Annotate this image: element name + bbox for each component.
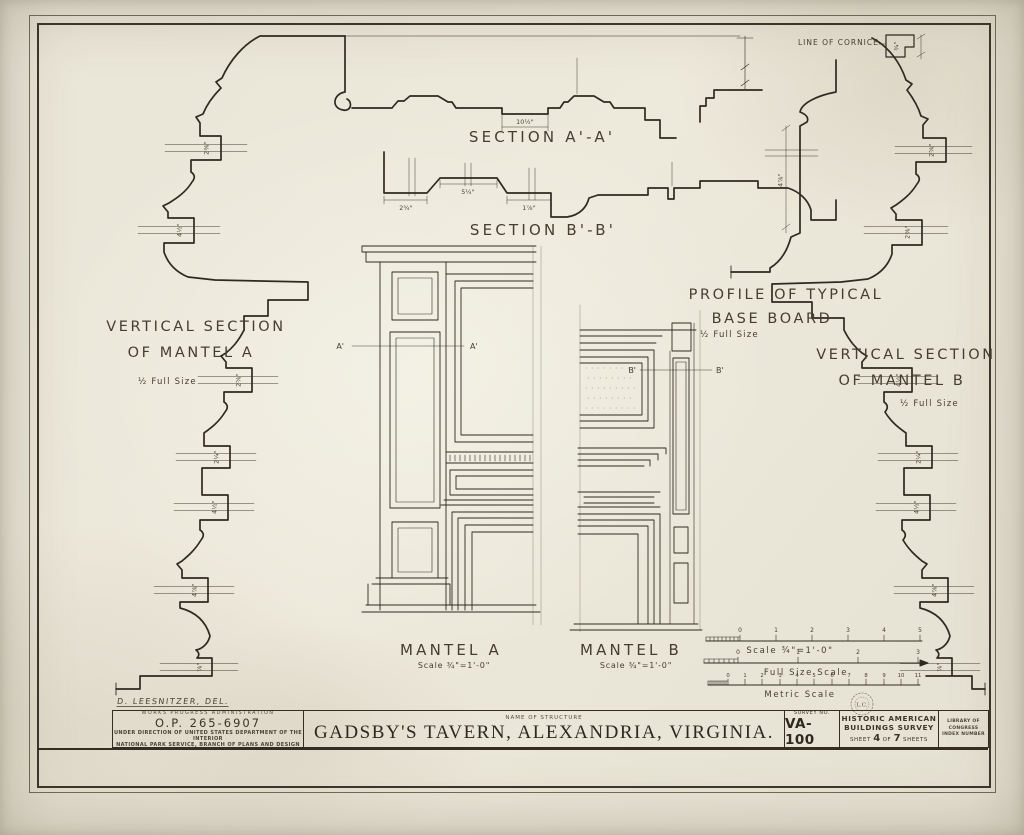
line-of-cornice-label: LINE OF CORNICE: [798, 38, 879, 47]
stamp-initials: L.C.: [856, 703, 867, 709]
survey-number: VA-100: [785, 716, 839, 747]
sheet-total: 7: [894, 733, 901, 744]
mantel-a-mark-left: A': [336, 342, 344, 351]
scale34-tick-0: 0: [738, 627, 742, 634]
cornice-dim: ¾": [894, 41, 901, 50]
vsa-dim-4: 4½": [211, 500, 219, 514]
section-aa-label: SECTION A'-A': [469, 128, 615, 146]
vsa-dim-6: ⅞": [197, 662, 204, 671]
metric-tick-3: 3: [778, 673, 781, 679]
cornice-reference-line: [260, 36, 886, 90]
vertical-section-b-line1: VERTICAL SECTION: [816, 347, 995, 363]
mantel-a-scale: Scale ¾"=1'-0": [418, 661, 490, 670]
of-word: OF: [883, 737, 892, 743]
mantel-a-mark-right: A': [470, 342, 478, 351]
vertical-section-b-line2: OF MANTEL B: [839, 373, 966, 389]
scale34-label: Scale ¾"=1'-0": [746, 646, 833, 656]
fullsize-tick-2: 2: [856, 649, 860, 656]
section-bb-label: SECTION B'-B': [470, 221, 616, 239]
mantel-b-mark-right: B': [716, 366, 724, 375]
metric-tick-5: 5: [812, 673, 815, 679]
scale34-tick-5: 5: [918, 627, 922, 634]
graphic-scales: 0 1 2 3 4 5 Scale ¾"=1'-0" 0 1 2 3 Full …: [704, 627, 928, 715]
baseboard-label-line2: BASE BOARD: [712, 311, 833, 327]
mantel-b-label: MANTEL B: [580, 641, 682, 659]
fullsize-tick-0: 0: [736, 649, 740, 656]
vsb-dim-0: 2⅝": [929, 143, 936, 157]
section-aa-dim: 10½": [516, 118, 534, 126]
fullsize-tick-3: 3: [916, 649, 920, 656]
vertical-section-b-scale: ½ Full Size: [900, 399, 959, 409]
scale34-tick-1: 1: [774, 627, 778, 634]
mantel-a-elevation: A' A': [336, 246, 541, 625]
vertical-section-a-scale: ½ Full Size: [138, 377, 197, 387]
metric-tick-2: 2: [760, 673, 763, 679]
metric-label: Metric Scale: [764, 690, 835, 700]
metric-tick-11: 11: [915, 673, 922, 679]
direction-line-1: UNDER DIRECTION OF UNITED STATES DEPARTM…: [113, 730, 303, 743]
vsb-dim-4: 4½": [913, 500, 921, 514]
vertical-section-a-line2: OF MANTEL A: [128, 345, 255, 361]
loc-line-1: LIBRARY OF CONGRESS: [947, 719, 980, 731]
metric-tick-0: 0: [726, 673, 730, 679]
mantel-a-vertical-section-profile: 2⅜" 4½" 2⅝" 2¼" 4½" 4⅞" ⅞": [116, 36, 345, 695]
vsa-dim-3: 2¼": [214, 450, 221, 464]
metric-tick-8: 8: [864, 673, 868, 679]
vsb-dim-5: 4⅞": [932, 583, 939, 597]
structure-name: GADSBY'S TAVERN, ALEXANDRIA, VIRGINIA.: [314, 722, 774, 744]
title-block-name-cell: NAME OF STRUCTURE GADSBY'S TAVERN, ALEXA…: [303, 711, 784, 747]
vsb-dim-6: ⅞": [937, 662, 944, 671]
baseboard-scale: ½ Full Size: [700, 330, 759, 340]
vertical-section-a-line1: VERTICAL SECTION: [106, 319, 285, 335]
sheet-word: SHEET: [850, 737, 871, 743]
habs-line-1: HISTORIC AMERICAN: [841, 714, 936, 723]
loc-line-2: INDEX NUMBER: [942, 732, 985, 737]
name-of-structure-label: NAME OF STRUCTURE: [505, 715, 582, 721]
title-block-agency-cell: WORKS PROGRESS ADMINISTRATION O.P. 265-6…: [113, 711, 303, 747]
title-block-loc-cell: LIBRARY OF CONGRESS INDEX NUMBER: [938, 711, 988, 747]
section-bb-dim-2: 1⅞": [522, 205, 536, 212]
habs-line-2: BUILDINGS SURVEY: [844, 723, 934, 732]
baseboard-dim: 4⅞": [778, 173, 785, 187]
delineator-signature: D. LEESNITZER, DEL.: [116, 697, 229, 707]
vsb-dim-3: 2¼": [916, 450, 923, 464]
metric-tick-1: 1: [743, 673, 746, 679]
mantel-b-scale: Scale ¾"=1'-0": [600, 661, 672, 670]
baseboard-label-line1: PROFILE OF TYPICAL: [689, 287, 884, 303]
scale34-tick-4: 4: [882, 627, 886, 634]
op-number: O.P. 265-6907: [155, 716, 261, 730]
baseboard-profile: 4⅞": [731, 60, 836, 278]
section-aa-profile: 10½": [335, 36, 762, 138]
vsa-dim-1: 4½": [176, 223, 184, 237]
sheet-number: 4: [873, 733, 880, 744]
title-block-habs-cell: HISTORIC AMERICAN BUILDINGS SURVEY SHEET…: [839, 711, 938, 747]
mantel-b-vertical-section-profile: 2⅝" 2⅜" 4½" 2¼" 4½" 4⅞" ⅞": [772, 38, 985, 695]
fullsize-label: Full Size Scale: [764, 668, 848, 678]
section-bb-dim-1: 5¼": [461, 189, 475, 196]
sheets-word: SHEETS: [903, 737, 928, 743]
sheet-count-line: SHEET 4 OF 7 SHEETS: [850, 733, 928, 744]
vsb-dim-1: 2⅜": [905, 225, 912, 239]
mantel-b-elevation: B' B': [570, 305, 724, 632]
mantel-a-label: MANTEL A: [400, 641, 502, 659]
scale34-tick-2: 2: [810, 627, 814, 634]
title-block-survey-cell: SURVEY NO. VA-100: [784, 711, 839, 747]
scale34-tick-3: 3: [846, 627, 850, 634]
direction-line-2: NATIONAL PARK SERVICE, BRANCH OF PLANS A…: [116, 742, 300, 747]
vsa-dim-2: 2⅝": [236, 373, 243, 387]
fullsize-tick-1: 1: [796, 649, 800, 656]
habs-drawing-sheet: 2⅜" 4½" 2⅝" 2¼" 4½" 4⅞" ⅞" 2⅝" 2⅜" 4½" 2…: [0, 0, 1024, 835]
title-block: WORKS PROGRESS ADMINISTRATION O.P. 265-6…: [112, 710, 989, 748]
metric-tick-10: 10: [898, 673, 905, 679]
title-block-bottom-rule: [38, 748, 988, 750]
vsa-dim-5: 4⅞": [192, 583, 199, 597]
mantel-b-mark-left: B': [628, 366, 636, 375]
section-bb-dim-0: 2¾": [399, 205, 413, 212]
metric-tick-7: 7: [847, 673, 850, 679]
section-bb-profile: 2¾" 5¼" 1⅞": [384, 152, 836, 220]
vsa-dim-0: 2⅜": [204, 141, 211, 155]
metric-tick-9: 9: [882, 673, 885, 679]
